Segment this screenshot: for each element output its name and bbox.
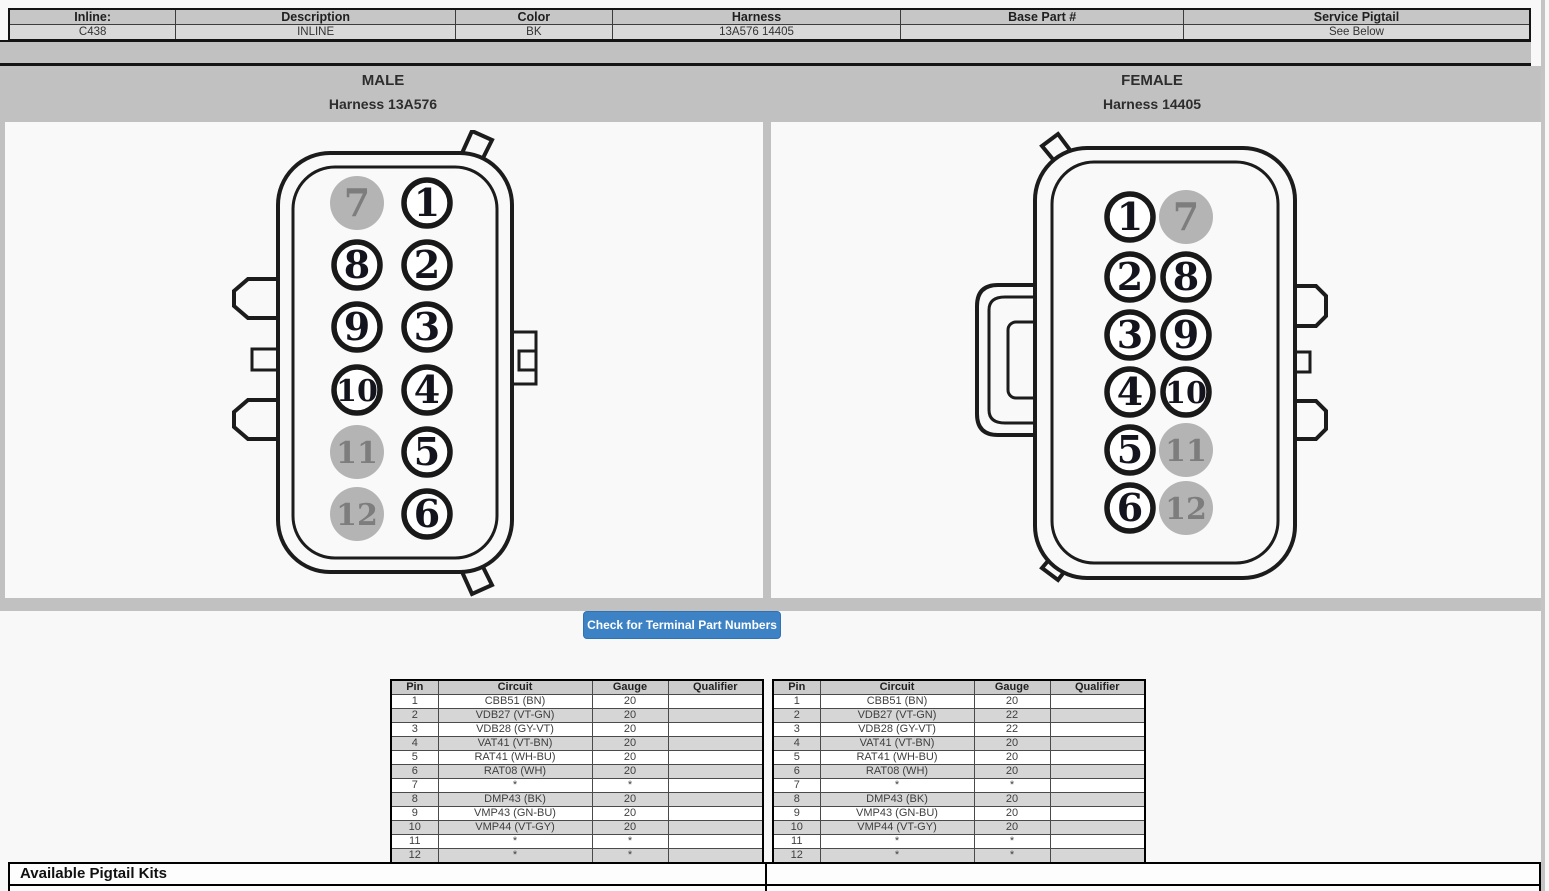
pin-table-cell: * — [438, 849, 592, 864]
pin-table-cell: 20 — [974, 793, 1050, 807]
pin-number-9: 9 — [344, 304, 370, 349]
pin-table-cell: 20 — [974, 765, 1050, 779]
pin-table-cell: 6 — [773, 765, 820, 779]
pin-table-row: 9VMP43 (GN-BU)20 — [773, 807, 1145, 821]
female-harness-subtitle: Harness 14405 — [771, 96, 1533, 112]
pin-table-cell: 20 — [974, 751, 1050, 765]
pin-table-header: Gauge — [592, 680, 668, 695]
pin-number-7: 7 — [344, 180, 370, 225]
pin-table-cell: 9 — [391, 807, 438, 821]
pigtail-part-number-empty-cell — [766, 885, 1540, 891]
header-column-value: INLINE — [176, 25, 456, 40]
pin-table-cell: VAT41 (VT-BN) — [438, 737, 592, 751]
male-title: MALE — [0, 72, 766, 89]
pin-table-row: 3VDB28 (GY-VT)20 — [391, 723, 763, 737]
pin-number-4: 4 — [414, 367, 440, 412]
male-harness-subtitle: Harness 13A576 — [0, 96, 766, 112]
pin-table-header: Qualifier — [1050, 680, 1145, 695]
pin-table-cell: VMP43 (GN-BU) — [820, 807, 974, 821]
pin-number-5: 5 — [414, 429, 440, 474]
pin-table-cell — [668, 779, 763, 793]
pin-table-row: 3VDB28 (GY-VT)22 — [773, 723, 1145, 737]
divider-strip — [0, 598, 1541, 611]
pigtail-title-empty-cell — [766, 863, 1540, 885]
male-body-outer — [278, 153, 512, 572]
pin-number-9: 9 — [1173, 312, 1199, 357]
pin-table-cell: * — [974, 835, 1050, 849]
male-left-small-tab — [252, 349, 280, 370]
pin-table-cell — [1050, 793, 1145, 807]
pin-table-cell: RAT08 (WH) — [820, 765, 974, 779]
pin-table-cell: 20 — [592, 723, 668, 737]
pin-table-cell: * — [974, 779, 1050, 793]
pin-table-row: 12** — [773, 849, 1145, 864]
pin-table-cell: 20 — [592, 821, 668, 835]
pin-table-cell — [1050, 709, 1145, 723]
pin-table-cell: CBB51 (BN) — [820, 695, 974, 709]
pin-table-row: 1CBB51 (BN)20 — [391, 695, 763, 709]
header-value-row: C438INLINEBK13A576 14405See Below — [9, 25, 1530, 40]
pin-table-cell: 9 — [773, 807, 820, 821]
pin-table-cell — [1050, 821, 1145, 835]
pin-table-header: Circuit — [820, 680, 974, 695]
male-connector-panel: 789101112123456 — [5, 122, 763, 598]
pin-table-cell: RAT41 (WH-BU) — [820, 751, 974, 765]
pin-table-cell: 20 — [592, 793, 668, 807]
pin-table-cell — [1050, 849, 1145, 864]
pin-table-cell: VDB27 (VT-GN) — [820, 709, 974, 723]
pin-number-11: 11 — [1165, 434, 1207, 469]
pin-table-row: 11** — [391, 835, 763, 849]
pin-table-cell: VMP44 (VT-GY) — [438, 821, 592, 835]
pin-table-row: 10VMP44 (VT-GY)20 — [391, 821, 763, 835]
pin-table-cell: 1 — [391, 695, 438, 709]
pigtail-kits-title: Available Pigtail Kits — [20, 865, 167, 882]
pin-table-cell: RAT41 (WH-BU) — [438, 751, 592, 765]
pin-table-cell — [668, 723, 763, 737]
pin-table-cell: * — [592, 849, 668, 864]
pin-table-header-row: PinCircuitGaugeQualifier — [391, 680, 763, 695]
header-column-value: BK — [455, 25, 612, 40]
pin-table-cell: 8 — [391, 793, 438, 807]
pigtail-part-number-row: Pigtail Kit Part Number WPT-1485 — [9, 885, 1540, 891]
pin-table-cell: * — [820, 835, 974, 849]
header-column-value — [901, 25, 1184, 40]
diagram-area: 789101112123456 123456789101112 — [0, 122, 1541, 598]
pin-table-cell: * — [592, 835, 668, 849]
empty-divider-row — [0, 40, 1531, 66]
pin-number-2: 2 — [414, 242, 440, 287]
pin-table-header: Gauge — [974, 680, 1050, 695]
pin-table-header: Pin — [391, 680, 438, 695]
pin-number-2: 2 — [1117, 254, 1143, 299]
pin-table-cell: 6 — [391, 765, 438, 779]
pin-table-row: 7** — [773, 779, 1145, 793]
pin-table-row: 5RAT41 (WH-BU)20 — [391, 751, 763, 765]
pin-table-cell — [1050, 737, 1145, 751]
pin-number-6: 6 — [1117, 485, 1143, 530]
header-column-label: Service Pigtail — [1183, 9, 1530, 25]
pin-table-row: 7** — [391, 779, 763, 793]
pin-table-cell: 8 — [773, 793, 820, 807]
pin-number-10: 10 — [336, 374, 378, 409]
pin-table-cell: 22 — [974, 709, 1050, 723]
pin-table-cell: 10 — [391, 821, 438, 835]
connector-titles-band: MALE Harness 13A576 FEMALE Harness 14405 — [0, 66, 1541, 122]
pin-table-row: 1CBB51 (BN)20 — [773, 695, 1145, 709]
male-pin-table: PinCircuitGaugeQualifier 1CBB51 (BN)202V… — [390, 679, 764, 864]
pin-number-3: 3 — [1117, 312, 1143, 357]
header-column-label: Inline: — [9, 9, 176, 25]
header-column-value: 13A576 14405 — [612, 25, 901, 40]
pin-table-cell: 11 — [773, 835, 820, 849]
header-column-value: See Below — [1183, 25, 1530, 40]
header-column-label: Base Part # — [901, 9, 1184, 25]
pin-table-cell: 20 — [974, 821, 1050, 835]
pin-number-1: 1 — [414, 180, 440, 225]
pin-table-row: 8DMP43 (BK)20 — [773, 793, 1145, 807]
pin-table-cell: 20 — [592, 765, 668, 779]
pin-table-row: 12** — [391, 849, 763, 864]
pin-table-cell — [668, 821, 763, 835]
pin-table-cell: 4 — [773, 737, 820, 751]
header-column-label: Description — [176, 9, 456, 25]
pin-table-cell — [668, 765, 763, 779]
pin-number-1: 1 — [1117, 194, 1143, 239]
pin-table-cell — [1050, 779, 1145, 793]
pin-table-cell: 11 — [391, 835, 438, 849]
pin-table-cell: 20 — [592, 695, 668, 709]
pin-table-cell: 22 — [974, 723, 1050, 737]
pin-table-cell: * — [974, 849, 1050, 864]
pin-table-cell: 20 — [592, 807, 668, 821]
pin-table-cell: VAT41 (VT-BN) — [820, 737, 974, 751]
pin-number-11: 11 — [336, 436, 378, 471]
pin-table-cell: VDB28 (GY-VT) — [438, 723, 592, 737]
female-right-upper-tab — [1292, 286, 1326, 326]
pin-table-cell: * — [820, 849, 974, 864]
pin-table-cell: 12 — [391, 849, 438, 864]
header-column-value: C438 — [9, 25, 176, 40]
pin-table-cell: 10 — [773, 821, 820, 835]
female-pin-table: PinCircuitGaugeQualifier 1CBB51 (BN)202V… — [772, 679, 1146, 864]
female-right-lower-tab — [1292, 401, 1326, 439]
pin-number-7: 7 — [1173, 194, 1199, 239]
pin-table-cell — [668, 835, 763, 849]
pigtail-title-row: Available Pigtail Kits — [9, 863, 1540, 885]
female-connector-diagram: 123456789101112 — [971, 130, 1336, 598]
pin-table-cell: 3 — [773, 723, 820, 737]
female-connector-panel: 123456789101112 — [771, 122, 1541, 598]
pin-table-cell: 2 — [391, 709, 438, 723]
male-title-block: MALE Harness 13A576 — [0, 72, 766, 112]
check-terminal-part-numbers-button[interactable]: Check for Terminal Part Numbers — [583, 611, 781, 639]
pin-table-row: 8DMP43 (BK)20 — [391, 793, 763, 807]
pin-table-cell: 20 — [974, 737, 1050, 751]
pin-table-cell: VMP43 (GN-BU) — [438, 807, 592, 821]
pin-table-cell — [1050, 835, 1145, 849]
pin-table-cell — [668, 737, 763, 751]
female-title-block: FEMALE Harness 14405 — [771, 72, 1533, 112]
pin-table-row: 9VMP43 (GN-BU)20 — [391, 807, 763, 821]
pin-table-cell: 7 — [773, 779, 820, 793]
pin-table-cell — [1050, 765, 1145, 779]
male-connector-outline — [234, 131, 536, 594]
pin-number-8: 8 — [1173, 254, 1199, 299]
pin-number-6: 6 — [414, 491, 440, 536]
pin-table-cell: 5 — [773, 751, 820, 765]
pin-table-cell — [1050, 751, 1145, 765]
connector-info-table: Inline:DescriptionColorHarnessBase Part … — [8, 8, 1531, 41]
pin-table-cell: 3 — [391, 723, 438, 737]
pin-number-3: 3 — [414, 304, 440, 349]
pin-table-cell: 20 — [974, 807, 1050, 821]
pin-table-row: 10VMP44 (VT-GY)20 — [773, 821, 1145, 835]
pin-table-cell: 1 — [773, 695, 820, 709]
pin-table-cell: 20 — [592, 709, 668, 723]
pin-table-cell: 2 — [773, 709, 820, 723]
pin-table-header: Pin — [773, 680, 820, 695]
pin-table-cell: VDB27 (VT-GN) — [438, 709, 592, 723]
pin-table-cell — [668, 807, 763, 821]
pin-table-cell — [668, 751, 763, 765]
pin-table-header-row: PinCircuitGaugeQualifier — [773, 680, 1145, 695]
pin-table-cell — [668, 695, 763, 709]
pin-table-cell: 20 — [974, 695, 1050, 709]
pin-table-cell: 20 — [592, 737, 668, 751]
pin-table-cell: CBB51 (BN) — [438, 695, 592, 709]
pin-table-cell: * — [438, 835, 592, 849]
pin-table-cell: * — [592, 779, 668, 793]
pin-table-row: 4VAT41 (VT-BN)20 — [773, 737, 1145, 751]
pin-table-cell: VDB28 (GY-VT) — [820, 723, 974, 737]
pin-table-cell: DMP43 (BK) — [438, 793, 592, 807]
pin-table-cell — [668, 849, 763, 864]
header-column-label: Color — [455, 9, 612, 25]
pin-table-cell: VMP44 (VT-GY) — [820, 821, 974, 835]
pin-table-cell: RAT08 (WH) — [438, 765, 592, 779]
pin-table-cell: 20 — [592, 751, 668, 765]
pin-table-row: 6RAT08 (WH)20 — [773, 765, 1145, 779]
pin-table-cell: 4 — [391, 737, 438, 751]
pigtail-kits-table: Available Pigtail Kits Pigtail Kit Part … — [8, 862, 1541, 891]
male-left-lower-tab — [234, 400, 280, 439]
pin-table-cell: 5 — [391, 751, 438, 765]
pin-number-12: 12 — [1165, 492, 1207, 527]
pin-table-row: 4VAT41 (VT-BN)20 — [391, 737, 763, 751]
pin-table-cell — [1050, 723, 1145, 737]
pin-table-header: Qualifier — [668, 680, 763, 695]
pin-number-8: 8 — [344, 242, 370, 287]
pin-table-cell — [668, 793, 763, 807]
pin-number-10: 10 — [1165, 376, 1207, 411]
pin-table-row: 5RAT41 (WH-BU)20 — [773, 751, 1145, 765]
pin-table-row: 2VDB27 (VT-GN)22 — [773, 709, 1145, 723]
pin-number-12: 12 — [336, 498, 378, 533]
header-column-label: Harness — [612, 9, 901, 25]
pin-table-row: 2VDB27 (VT-GN)20 — [391, 709, 763, 723]
male-connector-diagram: 789101112123456 — [230, 130, 560, 598]
pin-table-header: Circuit — [438, 680, 592, 695]
pin-number-4: 4 — [1117, 369, 1143, 414]
female-title: FEMALE — [771, 72, 1533, 89]
pin-table-cell: 7 — [391, 779, 438, 793]
header-label-row: Inline:DescriptionColorHarnessBase Part … — [9, 9, 1530, 25]
pin-table-cell: * — [438, 779, 592, 793]
pin-table-cell — [1050, 807, 1145, 821]
pin-table-row: 6RAT08 (WH)20 — [391, 765, 763, 779]
pin-table-row: 11** — [773, 835, 1145, 849]
pin-table-cell — [668, 709, 763, 723]
pin-table-cell: DMP43 (BK) — [820, 793, 974, 807]
scrollbar-track[interactable] — [1541, 0, 1545, 891]
pin-table-cell — [1050, 695, 1145, 709]
pin-table-cell: * — [820, 779, 974, 793]
pin-number-5: 5 — [1117, 427, 1143, 472]
male-left-upper-tab — [234, 279, 280, 318]
pin-table-cell: 12 — [773, 849, 820, 864]
